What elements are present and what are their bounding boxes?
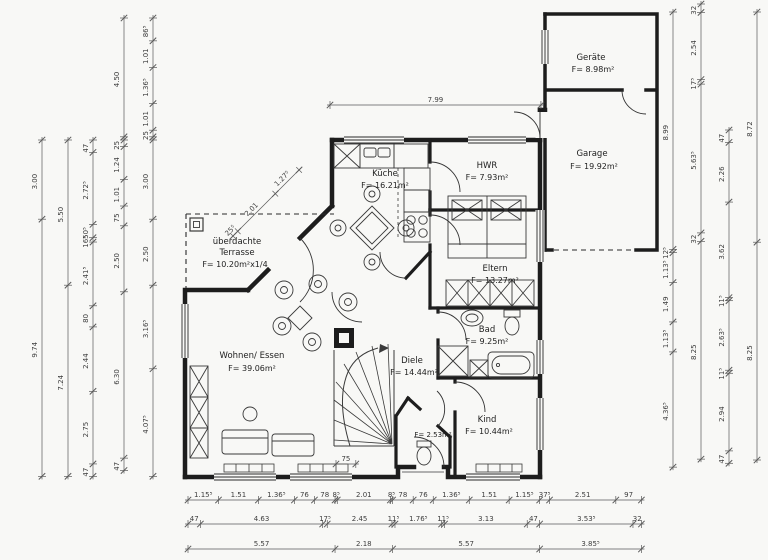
- dimension-value: 1.01: [142, 48, 150, 64]
- chimney: [334, 328, 354, 348]
- dimension-value: 1.36⁵: [267, 491, 286, 499]
- dimension-value: 6.30: [113, 369, 121, 385]
- sofa-group: [222, 407, 314, 456]
- dimension-value: 12⁵: [662, 247, 670, 259]
- dimension-value: 2.63⁵: [718, 328, 726, 347]
- dimension-value: 4.63: [254, 515, 270, 523]
- wc-toilet-icon: [417, 447, 431, 465]
- room-area-wc: F= 2.53m²: [414, 431, 452, 439]
- floor-plan-page: Geräte F= 8.98m² Garage F= 19.92m² Küche…: [0, 0, 768, 560]
- dimension-value: 4.36⁵: [662, 402, 670, 421]
- dimension-value: 2.50: [142, 246, 150, 262]
- stairs: [334, 344, 394, 446]
- door-wc: [437, 391, 445, 426]
- dimension-value: 47: [82, 144, 90, 153]
- dimension-value: 2.26: [718, 166, 726, 182]
- dimension-value: 17⁵: [690, 78, 698, 90]
- dimension-value: 2.75: [82, 422, 90, 438]
- dimension-value: 5.57: [458, 540, 474, 548]
- dimension-value: 3.62: [718, 244, 726, 260]
- dimension-value: 2.01: [356, 491, 372, 499]
- dimension-value: 7.24: [57, 374, 65, 390]
- room-area-garage: F= 19.92m²: [570, 162, 618, 171]
- dimension-value: 78: [320, 491, 329, 499]
- dimension-value: 3.53⁵: [577, 515, 596, 523]
- room-area-diele: F= 14.44m²: [390, 368, 438, 377]
- dimension-value: 2.01: [243, 201, 260, 218]
- dimension-value: 2.72⁵: [82, 181, 90, 200]
- dimension-value: 25: [142, 131, 150, 140]
- dimension-value: 2.18: [356, 540, 372, 548]
- dimension-value: 76: [300, 491, 309, 499]
- dimension-value: 1.13⁵: [662, 260, 670, 279]
- dimension-value: 78: [398, 491, 407, 499]
- dimension-value: 2.45: [352, 515, 368, 523]
- dimension-value: 3.00: [142, 174, 150, 190]
- dimension-value: 32: [690, 6, 698, 15]
- dimension-value: 37⁵: [539, 491, 551, 499]
- double-bed: [448, 196, 526, 258]
- room-label-diele: Diele: [401, 356, 423, 366]
- dimension-value: 1.15⁵: [194, 491, 213, 499]
- dimension-value: 8.25: [746, 345, 754, 361]
- dimension-value: 1.27⁵: [273, 169, 292, 188]
- dimension-value: 2.54: [690, 40, 698, 56]
- dimension-value: 32: [690, 235, 698, 244]
- room-label-kueche: Küche: [372, 169, 398, 179]
- floor-plan-svg: Geräte F= 8.98m² Garage F= 19.92m² Küche…: [0, 0, 768, 560]
- door-terrace: [300, 238, 313, 302]
- room-area-kueche: F= 16.21m²: [361, 181, 409, 190]
- room-area-bad: F= 9.25m²: [466, 337, 509, 346]
- door-kueche-hwr: [430, 162, 460, 192]
- dimension-value: 80: [82, 314, 90, 323]
- dimension-value: 1.13⁵: [662, 330, 670, 349]
- room-area-kind: F= 10.44m²: [465, 427, 513, 436]
- door-bad: [438, 312, 466, 340]
- dimension-value: 47: [529, 515, 538, 523]
- dimension-value: 5.63⁵: [690, 151, 698, 170]
- dimension-value: 2.44: [82, 353, 90, 369]
- dimension-value: 86⁵: [142, 25, 150, 37]
- dimension-value: 9.74: [31, 341, 39, 357]
- dimension-value: 3.16⁵: [142, 320, 150, 339]
- dimension-value: 47: [82, 468, 90, 477]
- dimension-value: 1.36⁵: [142, 78, 150, 97]
- terrace-column: [190, 218, 203, 231]
- dimension-value: 8.72: [746, 121, 754, 137]
- dimension-value: 25: [113, 141, 121, 150]
- room-label-terrasse-1: überdachte: [213, 237, 262, 247]
- dimension-value: 2.51: [575, 491, 591, 499]
- room-label-eltern: Eltern: [482, 264, 507, 274]
- dimension-value: 32: [633, 515, 642, 523]
- sink-icon: [461, 310, 483, 326]
- dimension-value: 11⁵: [718, 368, 726, 380]
- dimension-value: 47: [190, 515, 199, 523]
- kitchen-counter: [334, 144, 430, 242]
- dimension-value: 3.13: [478, 515, 494, 523]
- room-label-kind: Kind: [478, 415, 497, 425]
- dimension-value: 7.99: [428, 96, 444, 104]
- dimension-value: 1.76⁵: [409, 515, 428, 523]
- dimension-value: 5.57: [254, 540, 270, 548]
- dimension-value: 1.24: [113, 157, 121, 173]
- dimension-value: 4.50: [113, 72, 121, 88]
- dimension-value: 2.50: [113, 253, 121, 269]
- dimension-value: 8.99: [662, 125, 670, 141]
- dimension-value: 75: [113, 213, 121, 222]
- door-kind: [455, 382, 485, 412]
- dimension-value: 1.49: [662, 296, 670, 312]
- dimension-value: 1.15⁵: [515, 491, 534, 499]
- sideboard-shelf: [190, 366, 208, 458]
- room-area-eltern: F= 13.27m²: [471, 276, 519, 285]
- room-label-hwr: HWR: [477, 161, 498, 171]
- radiators: [224, 464, 522, 472]
- room-labels: Geräte F= 8.98m² Garage F= 19.92m² Küche…: [202, 53, 618, 439]
- dimension-value: 1.51: [231, 491, 247, 499]
- dimension-value: 25⁵: [223, 224, 237, 238]
- toilet-tank: [504, 310, 520, 317]
- room-label-terrasse-2: Terrasse: [218, 248, 254, 258]
- room-label-geraete: Geräte: [576, 53, 605, 63]
- room-area-wohnen-essen: F= 39.06m²: [228, 364, 276, 373]
- room-area-geraete: F= 8.98m²: [572, 65, 615, 74]
- dimension-value: 2.41⁵: [82, 267, 90, 286]
- dimension-value: 1.01: [113, 187, 121, 203]
- dimension-value: 47: [718, 455, 726, 464]
- wc-toilet-tank: [417, 441, 431, 447]
- dimension-value: 3.00: [31, 174, 39, 190]
- dimension-value: 11⁵: [718, 295, 726, 307]
- dimension-value: 4.07⁵: [142, 415, 150, 434]
- dimension-value: 47: [718, 134, 726, 143]
- stair-arrow: [379, 344, 389, 353]
- dimension-value: 75: [341, 455, 350, 463]
- dimension-value: 16⁵: [82, 236, 90, 248]
- dimension-value: 2.94: [718, 406, 726, 422]
- room-label-garage: Garage: [576, 149, 607, 159]
- room-area-hwr: F= 7.93m²: [466, 173, 509, 182]
- dimension-value: 47: [113, 462, 121, 471]
- dimension-value: 5.50: [57, 207, 65, 223]
- dining-table-set: [330, 186, 414, 270]
- dimension-value: 1.51: [481, 491, 497, 499]
- dimension-value: 1.01: [142, 111, 150, 127]
- dimension-value: 3.85⁵: [581, 540, 600, 548]
- room-label-wohnen-essen: Wohnen/ Essen: [220, 351, 285, 361]
- opening-kueche-diele: [380, 252, 406, 278]
- dimension-value: 97: [624, 491, 633, 499]
- garage-walls: [540, 14, 657, 250]
- door-eltern: [430, 215, 460, 245]
- opening-wohnen-diele: [332, 292, 362, 322]
- room-label-bad: Bad: [479, 325, 495, 335]
- dimension-value: 76: [419, 491, 428, 499]
- dimension-value: 8.25: [690, 344, 698, 360]
- dimension-value: 1.36⁵: [442, 491, 461, 499]
- wc-fixtures: [417, 441, 431, 465]
- door-garage-geraete: [622, 90, 646, 114]
- toilet-icon: [505, 317, 519, 335]
- room-area-terrasse: F= 10.20m²x1/4: [202, 260, 267, 269]
